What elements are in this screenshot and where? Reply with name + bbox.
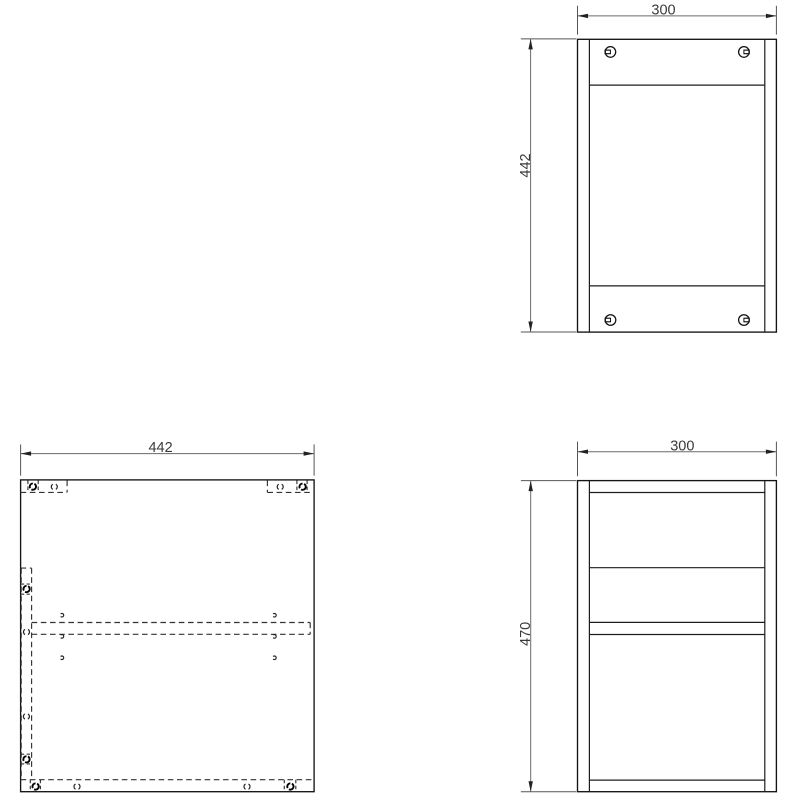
svg-text:442: 442: [518, 153, 534, 177]
svg-text:442: 442: [148, 440, 172, 456]
svg-text:470: 470: [518, 622, 534, 646]
svg-text:300: 300: [651, 3, 675, 19]
svg-text:300: 300: [670, 438, 694, 454]
